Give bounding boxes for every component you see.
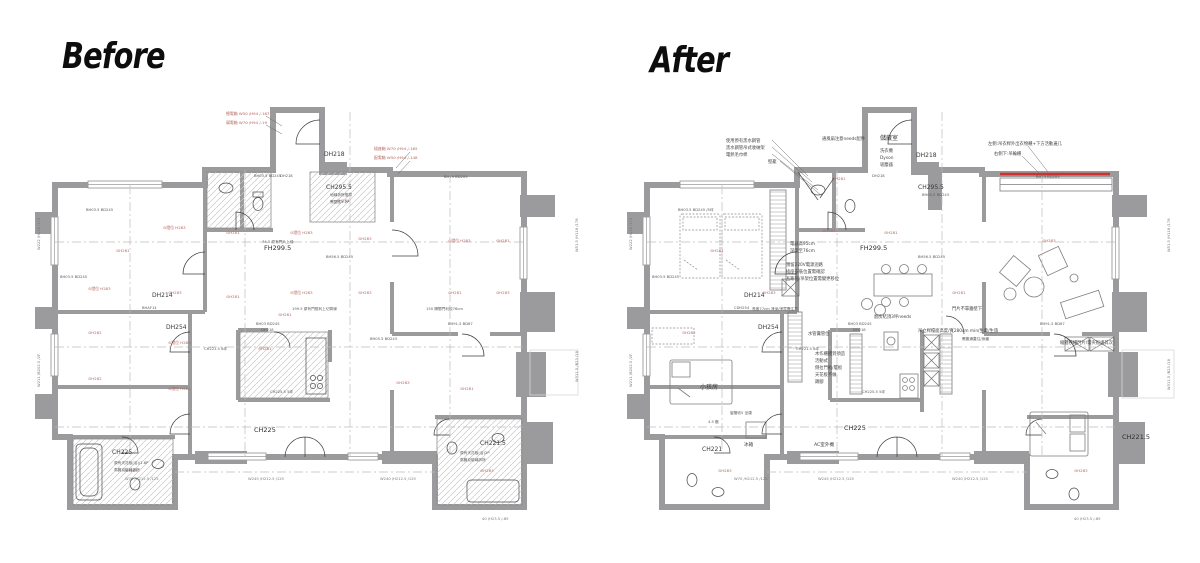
svg-text:⊙燈位 H283: ⊙燈位 H283 [168,386,191,391]
svg-text:右側下:吊輪櫃: 右側下:吊輪櫃 [994,150,1022,157]
svg-text:⊙H283: ⊙H283 [358,290,372,295]
door-arc [170,414,190,434]
svg-text:⊙H283: ⊙H283 [496,290,510,295]
svg-text:門片不靠牆壁下: 門片不靠牆壁下 [952,305,983,312]
svg-text:W51.5 /H118 /178: W51.5 /H118 /178 [575,218,579,252]
svg-text:⊙H281: ⊙H281 [710,248,724,253]
svg-text:W51.5 /H118 /178: W51.5 /H118 /178 [1167,218,1171,252]
label-kids-room: 小孩房 [700,383,718,391]
svg-text:⊙H282: ⊙H282 [88,330,102,335]
svg-text:⊙燈位 H283: ⊙燈位 H283 [290,290,313,295]
svg-text:黑水鋼管吊式收納架: 黑水鋼管吊式收納架 [726,144,765,151]
sink-icon [712,488,724,497]
label-storage-room: 儲藏室 [880,134,898,142]
svg-text:W211 /B202.5 /2F: W211 /B202.5 /2F [37,354,41,387]
svg-text:需靠通蓋住/身藏: 需靠通蓋住/身藏 [962,336,989,341]
svg-text:⊙H282: ⊙H282 [88,376,102,381]
svg-text:BH91.5 BD67: BH91.5 BD67 [448,322,473,326]
before-after-floorplan-comparison: Before After [0,0,1200,563]
svg-text:W211 /B202.5 /2F: W211 /B202.5 /2F [629,354,633,387]
svg-text:⊙H283: ⊙H283 [822,228,836,233]
svg-text:W240 /H212.5 /125: W240 /H212.5 /125 [380,477,417,481]
before-doors [122,120,484,457]
svg-text:⊙H281: ⊙H281 [448,290,462,295]
bed-twin [680,214,762,278]
svg-text:BH05.5 BD243: BH05.5 BD243 [922,193,950,197]
svg-text:木作櫃體到頂造: 木作櫃體到頂造 [815,350,846,357]
svg-text:⊙燈位 H283: ⊙燈位 H283 [88,286,111,291]
door-arc [296,120,320,144]
svg-text:BHAF14: BHAF14 [142,306,157,310]
svg-text:W240 /H212.5 /125: W240 /H212.5 /125 [952,477,989,481]
svg-text:電熱毛巾桿: 電熱毛巾桿 [726,151,748,158]
svg-text:DH218: DH218 [261,328,274,332]
svg-text:壁龕: 壁龕 [768,158,777,165]
svg-text:CH221.5 8坪: CH221.5 8坪 [796,346,819,351]
svg-text:通風扇注意needs配件: 通風扇注意needs配件 [822,135,866,142]
label-dh254: DH254 [166,324,187,331]
svg-text:插座箱 W70 /H94 /-165: 插座箱 W70 /H94 /-165 [374,146,418,151]
door-arc [392,230,418,256]
svg-text:40 /H23.5 /-89: 40 /H23.5 /-89 [1074,517,1101,521]
svg-text:BH03.5 BD245: BH03.5 BD245 [254,174,282,178]
svg-text:⊙H281: ⊙H281 [278,312,292,317]
svg-text:洗衣機: 洗衣機 [880,147,894,154]
after-floorplan: FH299.5 CH295.5 DH218 儲藏室 DH214 DH254 CH… [622,82,1197,537]
label-ch225-bath: CH225 [112,449,132,456]
label-ch225-hall: CH225 [254,426,276,434]
svg-text:DH218: DH218 [280,174,293,178]
svg-text:⊙H281: ⊙H281 [226,230,240,235]
svg-text:⊙H283: ⊙H283 [718,468,732,473]
svg-text:原有天花板(浴)2P: 原有天花板(浴)2P [460,450,490,455]
svg-text:⊙H283: ⊙H283 [762,290,776,295]
svg-text:⊙H281: ⊙H281 [116,248,130,253]
svg-text:CH225.5 5坪: CH225.5 5坪 [270,389,293,394]
svg-text:BH56.5 BD245: BH56.5 BD245 [918,255,946,259]
svg-text:水管糞管位: 水管糞管位 [808,330,830,337]
svg-text:⊙H283: ⊙H283 [1042,238,1056,243]
svg-text:BH05.5 BD243: BH05.5 BD243 [370,337,398,341]
svg-text:BH79 BD205: BH79 BD205 [444,175,468,179]
before-floorplan: FH299.5 CH295.5 DH218 DH214 DH254 CH225 … [30,82,590,532]
svg-text:深度至76cm: 深度至76cm [790,247,815,254]
svg-text:⊙H283: ⊙H283 [480,468,494,473]
label-ch2955: CH295.5 [918,184,944,191]
after-interior-walls [647,170,1116,457]
svg-text:插座安裝位置需確認: 插座安裝位置需確認 [786,268,825,275]
svg-text:側拉門軌/層板: 側拉門軌/層板 [815,364,843,371]
svg-text:吸塵器: 吸塵器 [880,161,894,168]
svg-text:CH221.5 8坪: CH221.5 8坪 [204,346,227,351]
svg-text:⊙H283: ⊙H283 [1074,468,1088,473]
svg-text:踢腳: 踢腳 [815,378,824,385]
svg-text:W70 /H212.5 /125: W70 /H212.5 /125 [734,477,768,481]
label-dh218: DH218 [324,151,345,158]
svg-text:DH218: DH218 [872,174,885,178]
svg-text:弱電箱 W70 /H94 /-19: 弱電箱 W70 /H94 /-19 [226,120,268,125]
svg-text:Dyson: Dyson [880,155,894,161]
tall-cabinet [850,334,862,394]
svg-text:BH56.5 BD245: BH56.5 BD245 [326,255,354,259]
label-fridge: 冰箱 [744,441,754,448]
sink-icon [1046,470,1058,479]
label-ch2215-bath: CH221.5 [1122,433,1150,441]
svg-text:⊙H281: ⊙H281 [832,176,846,181]
svg-text:40 /H23.5 /-89: 40 /H23.5 /-89 [482,517,509,521]
svg-text:原有天花板(浴)/1.8P: 原有天花板(浴)/1.8P [114,460,149,465]
svg-text:BH03 BD245: BH03 BD245 [256,322,280,326]
svg-text:BH03.5 BD245 /5坪: BH03.5 BD245 /5坪 [678,207,714,212]
svg-text:廚房結頂3坪needs: 廚房結頂3坪needs [874,313,912,320]
svg-text:W311.5 /B23 /18: W311.5 /B23 /18 [1167,358,1171,390]
svg-text:吊立桿檯面高度/寬280cm min/生菓/生旅: 吊立桿檯面高度/寬280cm min/生菓/生旅 [918,327,999,334]
svg-text:左側:吊衣桿外出衣物櫃+下方活動邊几: 左側:吊衣桿外出衣物櫃+下方活動邊几 [988,140,1062,147]
svg-text:⊙H283: ⊙H283 [168,290,182,295]
svg-text:CH225.5 5坪: CH225.5 5坪 [862,389,885,394]
svg-text:BH79 BD205: BH79 BD205 [1036,175,1060,179]
svg-text:BH03.5 BD245: BH03.5 BD245 [652,275,680,279]
svg-text:馬賽克磁磚拆除: 馬賽克磁磚拆除 [460,457,486,462]
svg-text:長度77cm 淨深/淨寬需注意: 長度77cm 淨深/淨寬需注意 [752,306,798,311]
svg-text:W222 /H118 /178: W222 /H118 /178 [37,217,41,250]
svg-text:W222 /H118 /178: W222 /H118 /178 [629,217,633,250]
svg-text:⊙H281: ⊙H281 [258,346,272,351]
svg-text:⊙H281: ⊙H281 [226,294,240,299]
svg-text:⊙H283: ⊙H283 [358,236,372,241]
toilet-icon [1069,488,1079,500]
svg-text:DH218: DH218 [853,328,866,332]
svg-text:BH03.5 BD245: BH03.5 BD245 [86,208,114,212]
svg-text:74.5 原有門片上緣: 74.5 原有門片上緣 [262,239,294,244]
toilet-icon [687,474,697,487]
svg-text:馬賽克磁磚拆除: 馬賽克磁磚拆除 [114,467,140,472]
label-dh218: DH218 [916,152,937,159]
svg-text:BH03 BD245: BH03 BD245 [848,322,872,326]
label-ch2955: CH295.5 [326,184,352,191]
svg-text:⊙燈位 H283: ⊙燈位 H283 [163,225,186,230]
before-title: Before [62,36,165,77]
svg-text:⊙H281: ⊙H281 [460,386,474,391]
svg-text:W245 /H212.5 /125: W245 /H212.5 /125 [248,477,285,481]
wardrobe [770,190,786,290]
svg-text:BH03.5 BD245: BH03.5 BD245 [60,275,88,279]
svg-text:W70 /H212.5 /125: W70 /H212.5 /125 [125,477,159,481]
svg-text:⊙H282: ⊙H282 [682,330,696,335]
before-labels: FH299.5 CH295.5 DH218 DH214 DH254 CH225 … [112,151,506,456]
svg-text:⊙燈位 H283: ⊙燈位 H283 [290,230,313,235]
svg-text:總電箱 W50 /H94 /-167: 總電箱 W50 /H94 /-167 [226,111,270,116]
label-ch225-hall: CH225 [844,424,866,432]
shower-glass [798,172,834,200]
svg-text:⊙燈位 H283: ⊙燈位 H283 [168,340,191,345]
door-arc [183,252,205,274]
label-fh299: FH299.5 [264,244,291,252]
svg-text:CDH254: CDH254 [734,306,750,310]
label-ch2215-bath: CH221.5 [480,440,506,447]
after-dimension-labels: W70 /H212.5 /125W245 /H212.5 /125W240 /H… [629,217,1171,521]
svg-text:150 隔間門利梳76cm: 150 隔間門利梳76cm [426,306,463,311]
svg-text:預留220V電源迴路: 預留220V電源迴路 [786,261,824,268]
svg-text:W311.5 /B23 /18: W311.5 /B23 /18 [575,350,579,382]
svg-text:199.5 原有門框利上切齊線: 199.5 原有門框利上切齊線 [292,306,337,311]
after-doors [714,120,1076,457]
door-arc [762,332,782,352]
svg-text:W245 /H212.5 /125: W245 /H212.5 /125 [818,477,855,481]
svg-text:⊙H281: ⊙H281 [884,230,898,235]
door-arc [462,334,484,356]
toilet-icon [845,200,855,213]
kids-bed [670,360,732,404]
svg-text:瓦斯管/吊架位置需變更移位: 瓦斯管/吊架位置需變更移位 [786,275,840,282]
after-title: After [650,40,728,81]
dining-set [862,265,933,316]
living-set [1000,246,1104,318]
svg-text:⊙H281: ⊙H281 [952,290,966,295]
svg-text:⊙燈位 H283: ⊙燈位 H283 [448,238,471,243]
svg-text:BH91.5 BD67: BH91.5 BD67 [1040,322,1065,326]
svg-text:⊙H283: ⊙H283 [396,380,410,385]
svg-text:使用原有黑水鋼管: 使用原有黑水鋼管 [726,137,761,144]
label-fh299: FH299.5 [860,244,887,252]
svg-text:需整區1.2P: 需整區1.2P [330,199,350,204]
svg-text:窗檯收5 坐康: 窗檯收5 坐康 [730,410,752,415]
svg-text:⊙H281: ⊙H281 [496,238,510,243]
label-dh254: DH254 [758,324,779,331]
svg-text:地磚拆除復原: 地磚拆除復原 [330,192,352,197]
svg-text:電器高95cm: 電器高95cm [790,240,815,247]
svg-text:配電箱 W50 /H94 /-148: 配電箱 W50 /H94 /-148 [374,155,418,160]
label-ac-unit: AC室外機 [814,441,834,448]
svg-text:縮體移櫃門片/需夾板處其次: 縮體移櫃門片/需夾板處其次 [1060,339,1114,346]
svg-text:天花板不做: 天花板不做 [815,371,837,378]
label-ch221-bath: CH221 [702,446,722,453]
door-arc [762,414,782,434]
svg-text:活動式: 活動式 [815,357,829,364]
svg-text:4.5 壓: 4.5 壓 [708,419,719,424]
